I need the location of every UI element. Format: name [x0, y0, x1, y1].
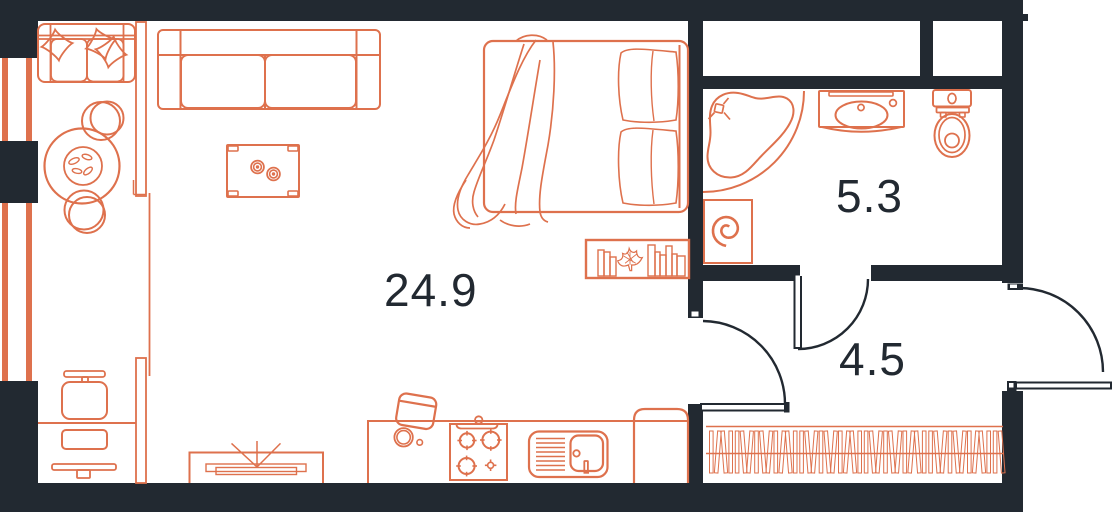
svg-text:4.5: 4.5 — [839, 333, 906, 385]
svg-text:24.9: 24.9 — [384, 264, 478, 316]
svg-text:5.3: 5.3 — [836, 170, 903, 222]
